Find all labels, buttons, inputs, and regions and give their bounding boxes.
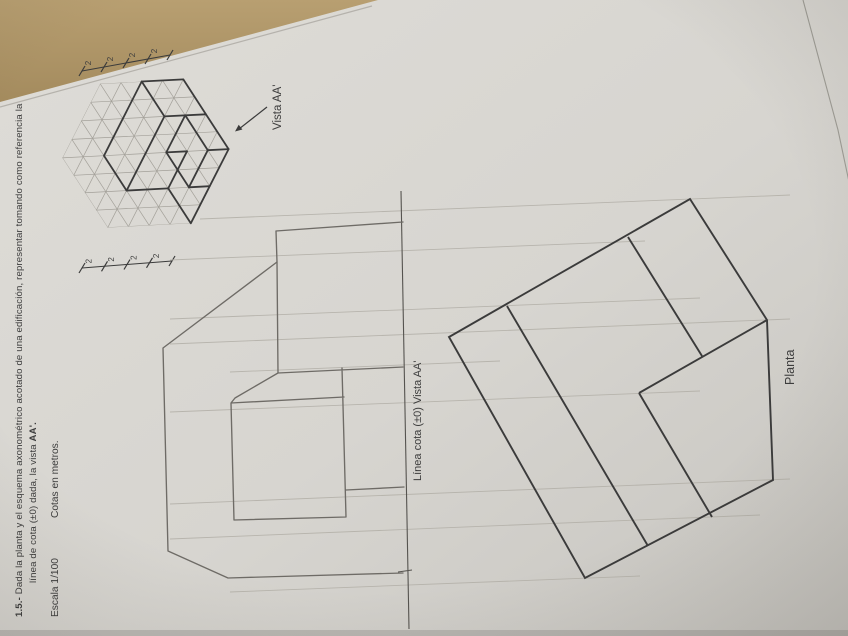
exercise-number: 1.5.-	[14, 597, 25, 617]
dimension-label: 2	[129, 255, 138, 260]
units-label: Cotas en metros.	[50, 440, 61, 518]
building-edge	[189, 186, 210, 187]
worksheet-canvas: 22222222 Vista AA' Línea cota (±0) Vista…	[0, 0, 848, 636]
exercise-title-line2-text: línea de cota (±0) dada, la vista	[28, 441, 39, 583]
dimension-label: 2	[107, 257, 116, 262]
dimension-label: 2	[84, 60, 93, 65]
paper-sheet	[0, 0, 848, 636]
paper-bottom-shadow	[0, 630, 848, 636]
dimension-label: 2	[84, 258, 93, 263]
photographed-worksheet: 22222222 Vista AA' Línea cota (±0) Vista…	[0, 0, 848, 636]
plan-label: Planta	[783, 350, 797, 385]
building-edge	[208, 149, 229, 150]
dimension-label: 2	[152, 253, 161, 258]
dimension-label: 2	[150, 48, 159, 53]
scale-label: Escala 1/100	[50, 558, 61, 617]
exercise-title-line2: línea de cota (±0) dada, la vista AA'.	[28, 422, 39, 583]
building-edge	[166, 151, 187, 152]
dimension-label: 2	[128, 52, 137, 57]
dimension-label: 2	[106, 56, 115, 61]
exercise-title-line1: 1.5.- Dada la planta y el esquema axonom…	[14, 103, 25, 617]
exercise-title-line2-bold: AA'.	[28, 422, 39, 441]
vista-aa-label: Vista AA'	[272, 85, 284, 130]
exercise-title-text: Dada la planta y el esquema axonométrico…	[14, 103, 25, 597]
datum-label: Línea cota (±0) Vista AA'	[412, 361, 424, 481]
